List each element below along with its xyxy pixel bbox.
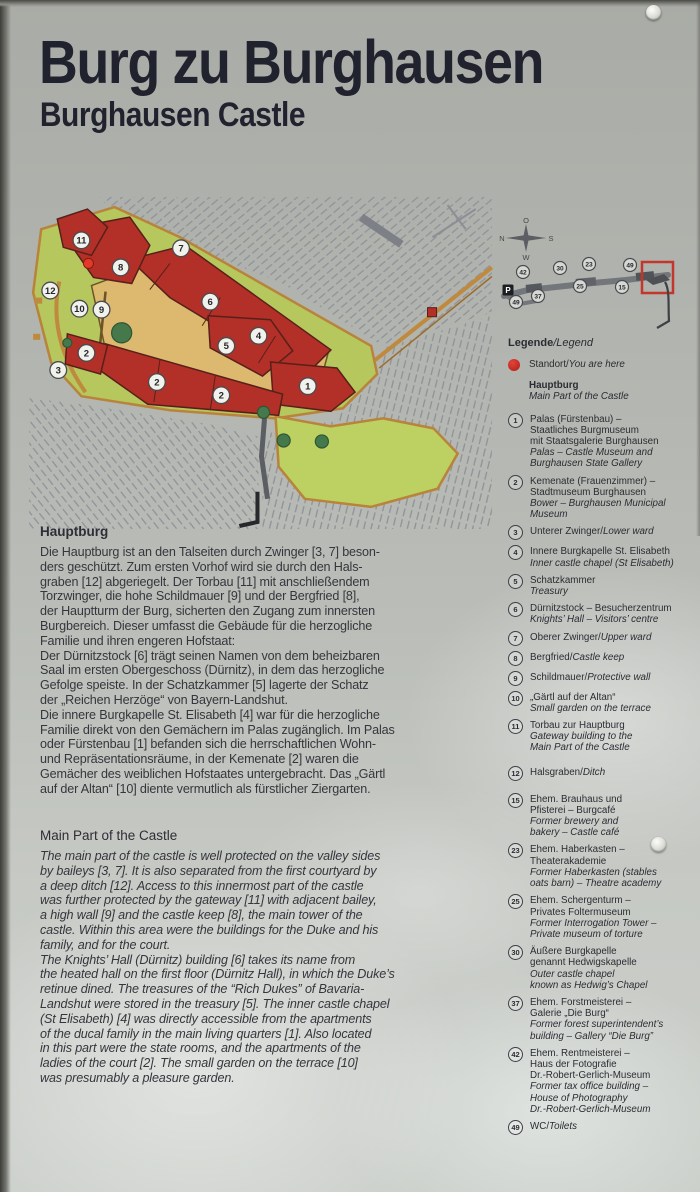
- svg-text:15: 15: [618, 284, 626, 291]
- svg-text:4: 4: [256, 331, 262, 342]
- legend-item: 8Bergfried/Castle keep: [508, 652, 694, 666]
- legend-item-text: Ehem. Schergenturm – Privates Foltermuse…: [530, 895, 657, 940]
- svg-text:11: 11: [76, 236, 87, 247]
- map-number-badge: 7: [173, 240, 190, 257]
- overview-number-badge: 49: [510, 296, 523, 309]
- parking-badge: P: [503, 285, 514, 296]
- legend-item: 3Unterer Zwinger/Lower ward: [508, 526, 694, 540]
- legend-item: 49WC/Toilets: [508, 1121, 694, 1135]
- compass-rose: O N S W: [499, 218, 553, 262]
- legend-item-text: Bergfried/Castle keep: [530, 652, 624, 666]
- legend-item-text: „Gärtl auf der Altan“ Small garden on th…: [530, 692, 651, 714]
- overview-number-badge: 25: [574, 280, 587, 293]
- map-number-badge: 3: [50, 362, 67, 379]
- svg-text:8: 8: [118, 263, 124, 274]
- slope-hatch-southwest: [29, 398, 258, 529]
- overview-number-badge: 15: [616, 281, 629, 294]
- svg-text:5: 5: [224, 341, 230, 352]
- legend-item-text: Ehem. Rentmeisterei – Haus der Fotografi…: [530, 1048, 651, 1115]
- legend-item: 15Ehem. Brauhaus und Pfisterei – Burgcaf…: [508, 794, 694, 839]
- legend-items: 1Palas (Fürstenbau) – Staatliches Burgmu…: [508, 414, 694, 1135]
- overview-map: O N S W 42302349P49372515: [498, 218, 693, 343]
- legend-number-badge: 4: [508, 545, 523, 560]
- svg-text:P: P: [505, 286, 511, 295]
- svg-text:1: 1: [305, 381, 311, 392]
- body-text-german: Die Hauptburg ist an den Talseiten durch…: [40, 545, 490, 797]
- sign-panel: Burg zu Burghausen Burghausen Castle: [0, 0, 700, 1192]
- legend-number-badge: 2: [508, 475, 523, 490]
- wall-tower: [428, 308, 437, 317]
- map-number-badge: 12: [42, 282, 59, 299]
- svg-text:6: 6: [208, 297, 213, 308]
- legend-item-text: Palas (Fürstenbau) – Staatliches Burgmus…: [530, 414, 659, 470]
- screw: [646, 5, 661, 20]
- legend-number-badge: 9: [508, 671, 523, 686]
- legend-item-text: Ehem. Brauhaus und Pfisterei – Burgcafé …: [530, 794, 622, 839]
- overview-map-svg: O N S W 42302349P49372515: [498, 218, 693, 343]
- svg-text:3: 3: [56, 365, 61, 376]
- page-title-german: Burg zu Burghausen: [39, 31, 543, 93]
- overview-number-badge: 42: [517, 266, 530, 279]
- legend-title-de: Legende: [508, 337, 553, 349]
- legend-item: 6Dürnitzstock – Besucherzentrum Knights’…: [508, 603, 694, 625]
- legend-number-badge: 37: [508, 996, 523, 1011]
- legend-number-badge: 23: [508, 843, 523, 858]
- compass-west: W: [522, 253, 530, 262]
- you-are-here-label: Standort/You are here: [529, 359, 625, 370]
- legend-number-badge: 42: [508, 1047, 523, 1062]
- legend-title: Legende/Legend: [508, 338, 694, 349]
- svg-text:2: 2: [219, 391, 224, 402]
- map-number-badge: 2: [213, 387, 230, 404]
- legend: Legende/Legend Standort/You are here Hau…: [508, 338, 694, 1141]
- legend-item-text: Schildmauer/Protective wall: [530, 672, 650, 686]
- overview-number-badge: 49: [624, 259, 637, 272]
- legend-number-badge: 6: [508, 602, 523, 617]
- svg-text:2: 2: [154, 377, 159, 388]
- castle-map-svg: 11871210965423221: [28, 197, 493, 529]
- legend-number-badge: 11: [508, 719, 523, 734]
- legend-item: 12Halsgraben/Ditch: [508, 767, 694, 781]
- svg-text:10: 10: [74, 304, 85, 315]
- legend-item: 2Kemenate (Frauenzimmer) – Stadtmuseum B…: [508, 476, 694, 521]
- legend-item-text: Schatzkammer Treasury: [530, 575, 595, 597]
- svg-text:49: 49: [626, 262, 634, 269]
- legend-number-badge: 1: [508, 413, 523, 428]
- strip-tail: [657, 282, 669, 328]
- legend-item-text: Innere Burgkapelle St. Elisabeth Inner c…: [530, 546, 674, 568]
- legend-number-badge: 25: [508, 894, 523, 909]
- overview-number-badge: 30: [554, 262, 567, 275]
- legend-number-badge: 10: [508, 691, 523, 706]
- map-number-badge: 4: [250, 327, 267, 344]
- svg-text:12: 12: [45, 286, 56, 297]
- map-number-badge: 5: [218, 338, 235, 355]
- legend-item: 7Oberer Zwinger/Upper ward: [508, 632, 694, 646]
- you-are-here-dot: [508, 359, 520, 371]
- body-text-english: The main part of the castle is well prot…: [40, 849, 490, 1086]
- legend-item-text: Halsgraben/Ditch: [530, 767, 605, 781]
- svg-text:23: 23: [585, 261, 593, 268]
- compass-south: S: [548, 234, 553, 243]
- map-number-badge: 1: [299, 378, 316, 395]
- legend-number-badge: 5: [508, 574, 523, 589]
- wall-stub: [35, 298, 42, 304]
- legend-item: 4Innere Burgkapelle St. Elisabeth Inner …: [508, 546, 694, 568]
- you-are-here-legend-row: Standort/You are here: [508, 359, 694, 371]
- legend-item: 25Ehem. Schergenturm – Privates Foltermu…: [508, 895, 694, 940]
- legend-number-badge: 3: [508, 525, 523, 540]
- panel-edge-top: [0, 0, 700, 7]
- svg-text:2: 2: [84, 348, 89, 359]
- svg-text:30: 30: [556, 265, 564, 272]
- compass-east: O: [523, 218, 529, 225]
- legend-item: 23Ehem. Haberkasten – Theaterakademie Fo…: [508, 844, 694, 889]
- legend-title-en: /Legend: [553, 337, 593, 349]
- svg-text:7: 7: [178, 244, 183, 255]
- svg-text:49: 49: [512, 299, 520, 306]
- legend-item-text: Unterer Zwinger/Lower ward: [530, 526, 654, 540]
- compass-north: N: [499, 234, 504, 243]
- legend-item: 11Torbau zur Hauptburg Gateway building …: [508, 720, 694, 754]
- legend-number-badge: 12: [508, 766, 523, 781]
- castle-map: 11871210965423221: [28, 197, 493, 529]
- legend-item: 1Palas (Fürstenbau) – Staatliches Burgmu…: [508, 414, 694, 470]
- overview-number-badge: 37: [532, 290, 545, 303]
- map-number-badge: 2: [149, 374, 166, 391]
- map-number-badge: 11: [73, 232, 90, 249]
- svg-text:42: 42: [519, 269, 527, 276]
- hauptburg-legend-heading: Hauptburg Main Part of the Castle: [529, 380, 694, 402]
- svg-text:9: 9: [99, 305, 104, 316]
- you-are-here-marker: [83, 258, 93, 268]
- page-title-english: Burghausen Castle: [40, 96, 543, 134]
- legend-item: 37Ehem. Forstmeisterei – Galerie „Die Bu…: [508, 997, 694, 1042]
- legend-number-badge: 49: [508, 1120, 523, 1135]
- map-number-badge: 8: [112, 259, 129, 276]
- legend-number-badge: 30: [508, 945, 523, 960]
- legend-item: 10„Gärtl auf der Altan“ Small garden on …: [508, 692, 694, 714]
- map-number-badge: 6: [202, 293, 219, 310]
- map-number-badge: 2: [78, 345, 95, 362]
- map-number-badge: 10: [71, 300, 88, 317]
- legend-item: 30Äußere Burgkapelle genannt Hedwigskape…: [508, 946, 694, 991]
- legend-item: 5Schatzkammer Treasury: [508, 575, 694, 597]
- legend-item-text: Oberer Zwinger/Upper ward: [530, 632, 651, 646]
- legend-item: 9Schildmauer/Protective wall: [508, 672, 694, 686]
- legend-item-text: Dürnitzstock – Besucherzentrum Knights’ …: [530, 603, 672, 625]
- section-heading-german: Hauptburg: [40, 524, 490, 540]
- legend-item-text: Torbau zur Hauptburg Gateway building to…: [530, 720, 632, 754]
- legend-number-badge: 15: [508, 793, 523, 808]
- map-number-badge: 9: [93, 301, 110, 318]
- legend-item-text: Ehem. Forstmeisterei – Galerie „Die Burg…: [530, 997, 663, 1042]
- section-german: Hauptburg Die Hauptburg ist an den Talse…: [40, 524, 490, 797]
- svg-text:37: 37: [534, 293, 542, 300]
- legend-item-text: WC/Toilets: [530, 1121, 577, 1135]
- legend-item-text: Ehem. Haberkasten – Theaterakademie Form…: [530, 844, 661, 889]
- wall-stub: [33, 334, 40, 340]
- legend-number-badge: 8: [508, 651, 523, 666]
- section-english: Main Part of the Castle The main part of…: [40, 828, 490, 1086]
- legend-item: 42Ehem. Rentmeisterei – Haus der Fotogra…: [508, 1048, 694, 1115]
- legend-item-text: Äußere Burgkapelle genannt Hedwigskapell…: [530, 946, 647, 991]
- title-block: Burg zu Burghausen Burghausen Castle: [39, 31, 543, 134]
- legend-number-badge: 7: [508, 631, 523, 646]
- overview-number-badge: 23: [583, 258, 596, 271]
- section-heading-english: Main Part of the Castle: [40, 828, 490, 844]
- legend-item-text: Kemenate (Frauenzimmer) – Stadtmuseum Bu…: [530, 476, 666, 521]
- panel-edge-left: [0, 0, 11, 1192]
- svg-text:25: 25: [576, 283, 584, 290]
- panel-edge-right: [696, 0, 700, 536]
